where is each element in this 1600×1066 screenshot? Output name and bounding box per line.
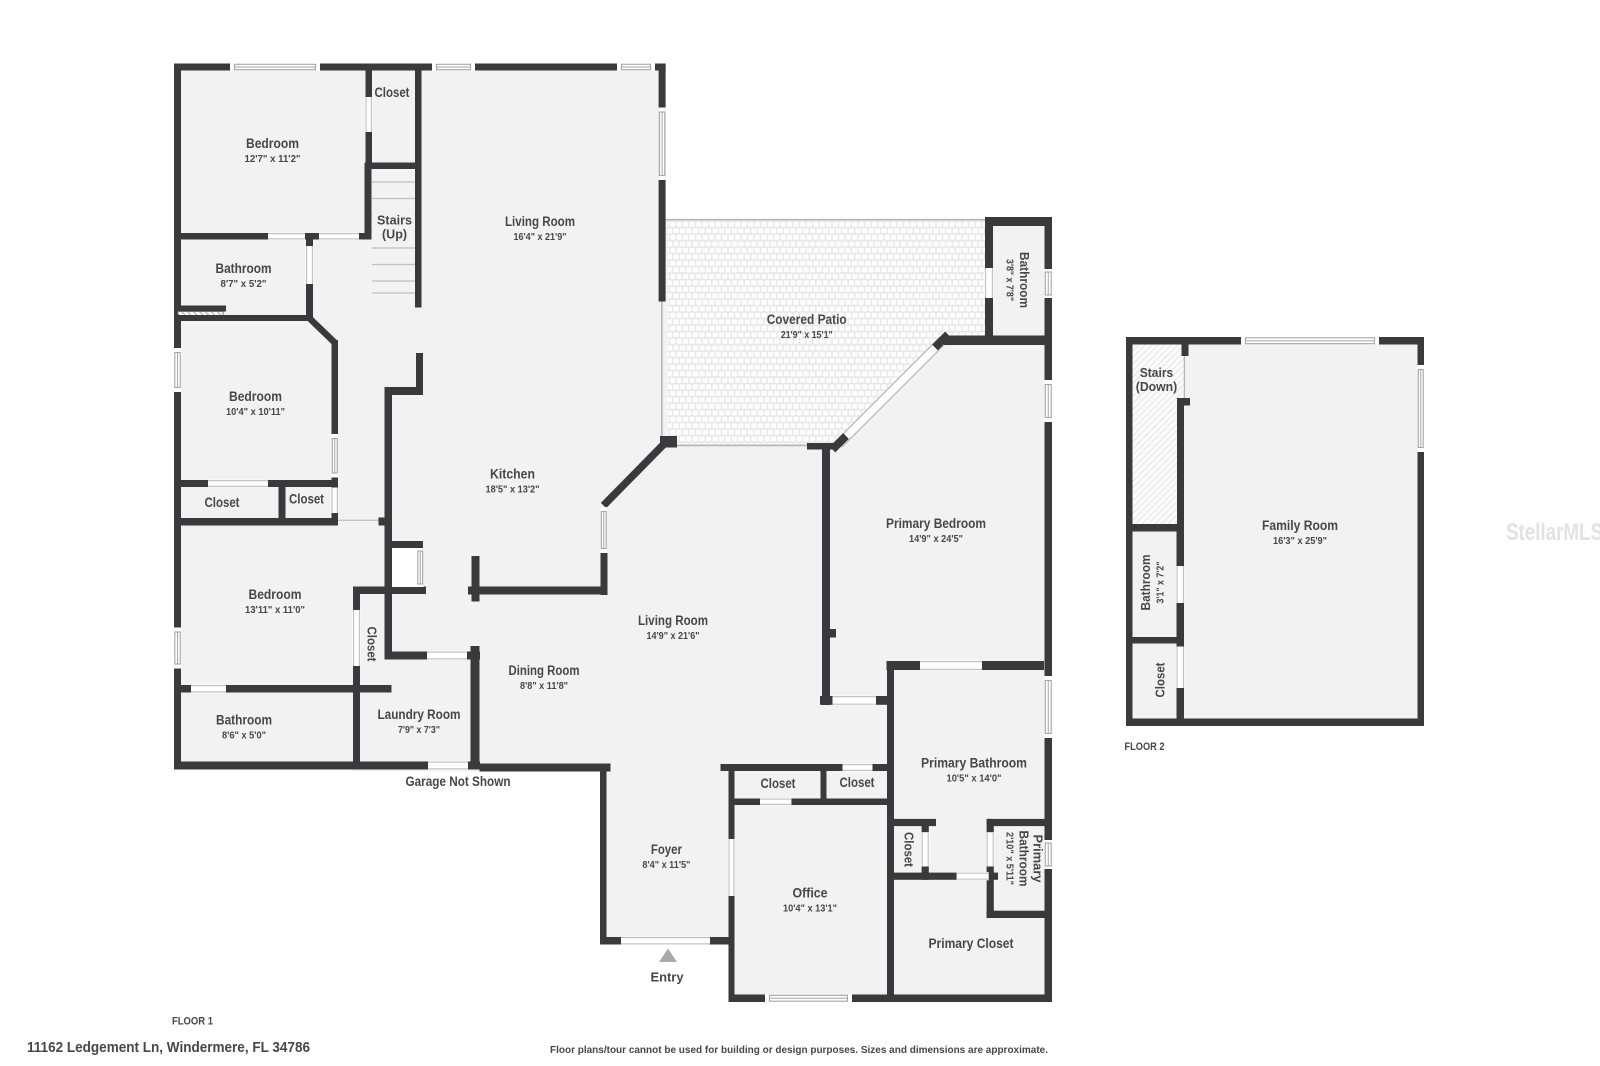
svg-text:8'4" x 11'5": 8'4" x 11'5" bbox=[642, 860, 690, 871]
svg-text:Primary Bedroom: Primary Bedroom bbox=[886, 516, 986, 531]
svg-text:Closet: Closet bbox=[902, 832, 917, 868]
svg-text:Closet: Closet bbox=[761, 776, 796, 791]
svg-text:Garage Not Shown: Garage Not Shown bbox=[406, 774, 511, 789]
svg-text:Bathroom: Bathroom bbox=[1138, 555, 1153, 611]
svg-text:Bathroom: Bathroom bbox=[1017, 252, 1032, 308]
svg-text:FLOOR 2: FLOOR 2 bbox=[1125, 741, 1165, 753]
svg-text:Stairs: Stairs bbox=[377, 214, 412, 228]
svg-text:13'11" x 11'0": 13'11" x 11'0" bbox=[245, 605, 305, 616]
svg-text:Entry: Entry bbox=[651, 970, 685, 985]
svg-text:Foyer: Foyer bbox=[651, 842, 683, 857]
svg-text:8'7" x 5'2": 8'7" x 5'2" bbox=[221, 279, 267, 290]
svg-text:16'3" x 25'9": 16'3" x 25'9" bbox=[1273, 536, 1327, 547]
svg-text:Closet: Closet bbox=[375, 85, 410, 100]
svg-text:8'6" x 5'0": 8'6" x 5'0" bbox=[222, 731, 266, 742]
svg-text:Bathroom: Bathroom bbox=[1017, 831, 1031, 887]
svg-text:10'5" x 14'0": 10'5" x 14'0" bbox=[947, 774, 1002, 785]
svg-text:Closet: Closet bbox=[289, 492, 324, 507]
svg-text:2'10" x 5'11": 2'10" x 5'11" bbox=[1004, 832, 1015, 885]
svg-text:FLOOR 1: FLOOR 1 bbox=[172, 1016, 213, 1028]
svg-text:(Down): (Down) bbox=[1136, 380, 1178, 394]
svg-text:Bathroom: Bathroom bbox=[216, 261, 272, 276]
svg-text:Primary Closet: Primary Closet bbox=[929, 936, 1014, 951]
svg-text:7'9" x 7'3": 7'9" x 7'3" bbox=[398, 725, 440, 736]
svg-text:Stairs: Stairs bbox=[1140, 366, 1174, 380]
svg-text:14'9" x 24'5": 14'9" x 24'5" bbox=[909, 534, 963, 545]
svg-text:Closet: Closet bbox=[1153, 662, 1168, 698]
svg-text:8'8" x 11'8": 8'8" x 11'8" bbox=[520, 681, 568, 692]
svg-text:12'7" x 11'2": 12'7" x 11'2" bbox=[245, 154, 301, 165]
svg-text:Dining Room: Dining Room bbox=[509, 663, 580, 678]
svg-text:Laundry Room: Laundry Room bbox=[378, 707, 461, 722]
svg-text:Bedroom: Bedroom bbox=[229, 389, 282, 404]
svg-text:Living Room: Living Room bbox=[638, 613, 708, 628]
svg-text:Closet: Closet bbox=[205, 495, 240, 510]
svg-text:Kitchen: Kitchen bbox=[490, 467, 535, 482]
svg-text:(Up): (Up) bbox=[382, 228, 407, 242]
svg-text:Family Room: Family Room bbox=[1262, 518, 1338, 533]
svg-text:10'4" x 10'11": 10'4" x 10'11" bbox=[226, 407, 285, 418]
svg-text:Bedroom: Bedroom bbox=[246, 136, 299, 151]
svg-text:14'9" x 21'6": 14'9" x 21'6" bbox=[647, 631, 700, 642]
svg-text:10'4" x 13'1": 10'4" x 13'1" bbox=[783, 904, 837, 915]
svg-text:Primary: Primary bbox=[1031, 835, 1045, 883]
svg-text:Closet: Closet bbox=[840, 775, 875, 790]
svg-text:Bedroom: Bedroom bbox=[249, 587, 302, 602]
svg-text:3'1" x 7'2": 3'1" x 7'2" bbox=[1156, 561, 1167, 603]
svg-text:21'9" x 15'1": 21'9" x 15'1" bbox=[781, 330, 833, 341]
svg-text:Covered Patio: Covered Patio bbox=[767, 312, 847, 327]
svg-text:StellarMLS: StellarMLS bbox=[1506, 519, 1600, 546]
svg-text:Floor plans/tour cannot be use: Floor plans/tour cannot be used for buil… bbox=[550, 1044, 1048, 1056]
svg-text:3'8" x 7'8": 3'8" x 7'8" bbox=[1004, 259, 1015, 301]
svg-text:16'4" x 21'9": 16'4" x 21'9" bbox=[514, 232, 567, 243]
svg-text:Bathroom: Bathroom bbox=[216, 713, 272, 728]
svg-text:Primary Bathroom: Primary Bathroom bbox=[921, 756, 1027, 771]
svg-text:18'5" x 13'2": 18'5" x 13'2" bbox=[486, 485, 540, 496]
svg-text:Office: Office bbox=[793, 886, 828, 901]
svg-text:Living Room: Living Room bbox=[505, 214, 575, 229]
svg-text:Closet: Closet bbox=[365, 627, 380, 663]
svg-text:11162 Ledgement Ln, Windermere: 11162 Ledgement Ln, Windermere, FL 34786 bbox=[27, 1040, 310, 1056]
